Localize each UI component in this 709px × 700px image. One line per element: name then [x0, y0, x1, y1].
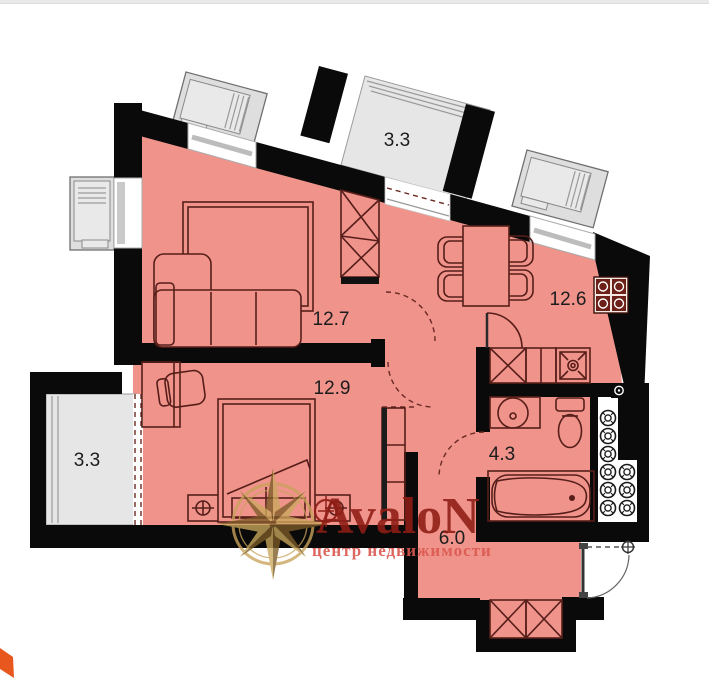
- room-label-left-balcony: 3.3: [74, 450, 100, 471]
- floor-plan-svg: 3.3 12.7 12.6 12.9 3.3 4.3 6.0 AvaloN це: [0, 0, 709, 700]
- room-label-bathroom: 4.3: [489, 444, 515, 465]
- room-label-top-balcony: 3.3: [384, 130, 410, 151]
- window-left-wall: [114, 178, 142, 248]
- watermark-tagline: центр недвижимости: [312, 541, 492, 560]
- room-label-living: 12.7: [313, 309, 350, 330]
- room-label-kitchen: 12.6: [550, 289, 587, 310]
- ac-unit-left: [70, 177, 114, 250]
- vent-icon: [611, 383, 627, 398]
- dining-table: [463, 226, 509, 306]
- watermark-brand: AvaloN: [316, 488, 480, 545]
- top-border: [0, 0, 709, 3]
- wardrobe-living: [341, 190, 379, 284]
- stove: [594, 277, 628, 313]
- room-label-bedroom: 12.9: [314, 378, 351, 399]
